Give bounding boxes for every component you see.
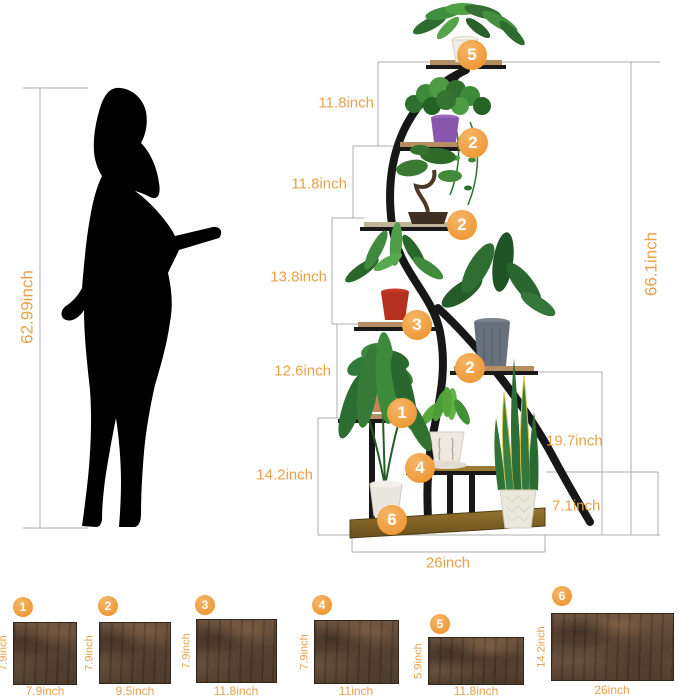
shelf-marker-3: 3	[402, 310, 432, 340]
base-width-label: 26inch	[426, 556, 470, 571]
panel-board-4	[314, 620, 399, 684]
panel-4-side-label: 7.9inch	[300, 634, 311, 669]
shelf-marker-5: 5	[457, 40, 487, 70]
panel-5-side-label: 5.9inch	[414, 643, 425, 678]
pot-bonsai	[408, 212, 448, 224]
plants	[333, 2, 559, 528]
panel-3-bottom-label: 11.8inch	[214, 685, 258, 697]
panel-2-bottom-label: 9.5inch	[116, 685, 155, 697]
plant-gray-pot	[437, 231, 558, 366]
panel-marker-2: 2	[98, 596, 118, 616]
panel-6-bottom-label: 26inch	[594, 684, 629, 696]
panel-marker-1: 1	[13, 597, 33, 617]
panel-3-side-label: 7.9inch	[182, 633, 193, 668]
panel-1-side-label: 7.9inch	[0, 635, 10, 670]
gap-label-4: 14.2inch	[256, 468, 313, 483]
panel-marker-3: 3	[195, 595, 215, 615]
shelf-marker-4: 4	[405, 453, 435, 483]
shelf-marker-1: 1	[387, 398, 417, 428]
panel-1-bottom-label: 7.9inch	[26, 685, 65, 697]
shelf-marker-2b: 2	[447, 210, 477, 240]
panel-marker-6: 6	[552, 586, 572, 606]
shelf-marker-2a: 2	[458, 128, 488, 158]
pot-purple	[431, 118, 459, 142]
person-silhouette	[62, 88, 222, 527]
panel-board-5	[428, 637, 524, 685]
right-gap-label-0: 19.7inch	[546, 434, 603, 449]
gap-label-0: 11.8inch	[318, 96, 374, 111]
total-height-label: 66.1inch	[643, 232, 660, 296]
panel-board-1	[13, 622, 77, 685]
gap-label-1: 11.8inch	[291, 177, 347, 192]
panel-2-side-label: 7.9inch	[85, 635, 96, 670]
gap-label-2: 13.8inch	[270, 270, 327, 285]
person-height-label: 62.99inch	[19, 270, 36, 344]
panel-5-bottom-label: 11.8inch	[454, 685, 498, 697]
panel-4-bottom-label: 11inch	[339, 685, 373, 697]
panel-6-side-label: 14.2inch	[537, 626, 548, 668]
panel-marker-5: 5	[430, 614, 450, 634]
pot-white-shelf4	[430, 432, 464, 464]
panel-board-3	[196, 619, 277, 683]
shelf4-posts	[450, 474, 472, 514]
right-gap-label-1: 7.1inch	[552, 499, 600, 514]
shelf-marker-6: 6	[377, 505, 407, 535]
panel-board-6	[551, 613, 674, 681]
plant-base-left	[333, 332, 437, 516]
gap-label-3: 12.6inch	[274, 364, 331, 379]
product-dimension-diagram: 62.99inch 11.8inch 11.8inch 13.8inch 12.…	[0, 0, 679, 698]
shelf-marker-2c: 2	[455, 353, 485, 383]
panel-board-2	[99, 622, 171, 684]
panel-marker-4: 4	[312, 595, 332, 615]
